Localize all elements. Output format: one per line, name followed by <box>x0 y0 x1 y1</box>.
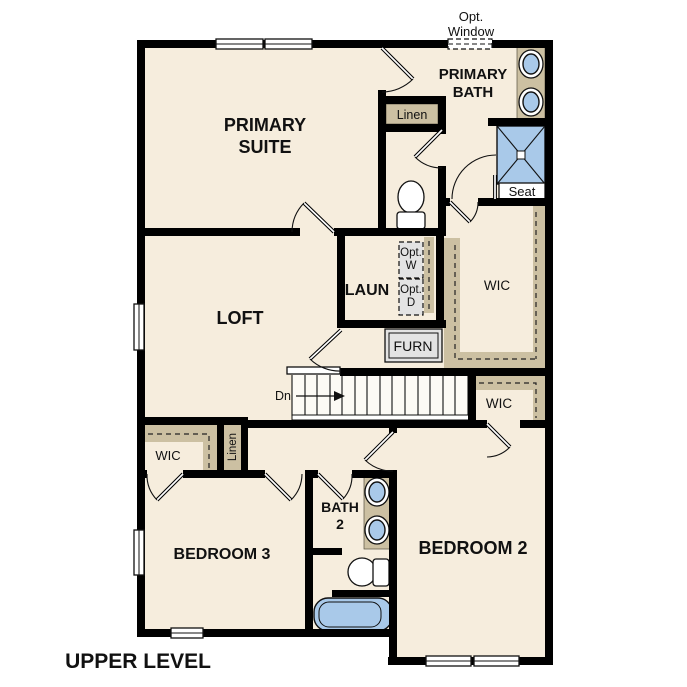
room-label-wic-bedroom3: WIC <box>155 448 180 463</box>
laundry-shelf-strip <box>424 237 434 313</box>
opt-window-label-line1: Opt. <box>459 9 484 24</box>
room-label-primary-suite-line2: SUITE <box>238 137 291 157</box>
seat-label: Seat <box>509 184 536 199</box>
wic-primary-shelf-right <box>533 206 545 368</box>
page-title: UPPER LEVEL <box>65 650 211 673</box>
furnace-label: FURN <box>394 338 433 354</box>
floor-bedroom2-extension <box>392 600 549 661</box>
toilet-tank-icon <box>373 559 389 586</box>
stair-rail-bottom <box>292 415 472 420</box>
sink-basin-icon <box>369 482 385 502</box>
opt-washer-label-line2: W <box>406 260 417 272</box>
shower-drain-icon <box>517 151 525 159</box>
room-label-wic-bedroom2: WIC <box>486 396 512 411</box>
wic-primary-shelf-left <box>444 238 460 368</box>
room-label-primary-suite-line1: PRIMARY <box>224 115 306 135</box>
wic-primary-shelf-bottom <box>444 352 540 368</box>
linen-hall-label: Linen <box>227 433 239 461</box>
opt-dryer-label-line2: D <box>407 297 415 309</box>
wic-bedroom3-shelf-right <box>203 442 217 470</box>
floor-plan-drawing: Opt. Window PRIMARY BATH PRIMARY SUITE L… <box>0 0 687 687</box>
room-label-primary-bath-line1: PRIMARY <box>439 66 508 83</box>
sink-basin-icon <box>369 520 385 540</box>
room-label-laundry: LAUN <box>345 282 389 299</box>
room-label-bedroom2: BEDROOM 2 <box>418 538 527 558</box>
toilet-icon <box>398 181 424 213</box>
room-label-bath2-line1: BATH <box>321 499 359 515</box>
opt-window-label-line2: Window <box>448 24 495 39</box>
opt-washer-label-line1: Opt. <box>400 247 422 259</box>
toilet-tank-icon <box>397 212 425 229</box>
room-label-primary-bath-line2: BATH <box>453 84 494 101</box>
opt-dryer-label-line1: Opt. <box>400 284 422 296</box>
wic-bedroom2-shelf-right <box>533 390 545 420</box>
toilet-icon <box>348 558 376 586</box>
stairs <box>292 373 472 420</box>
room-label-bedroom3: BEDROOM 3 <box>174 546 271 563</box>
floor-plan-page: Opt. Window PRIMARY BATH PRIMARY SUITE L… <box>0 0 687 687</box>
room-label-bath2-line2: 2 <box>336 516 344 532</box>
sink-basin-icon <box>523 54 539 74</box>
optional-window <box>448 39 492 49</box>
stairs-down-label: Dn <box>275 389 291 403</box>
room-label-loft: LOFT <box>217 308 264 328</box>
sink-basin-icon <box>523 92 539 112</box>
linen-primary-label: Linen <box>397 108 428 122</box>
room-label-wic-primary: WIC <box>484 278 510 293</box>
